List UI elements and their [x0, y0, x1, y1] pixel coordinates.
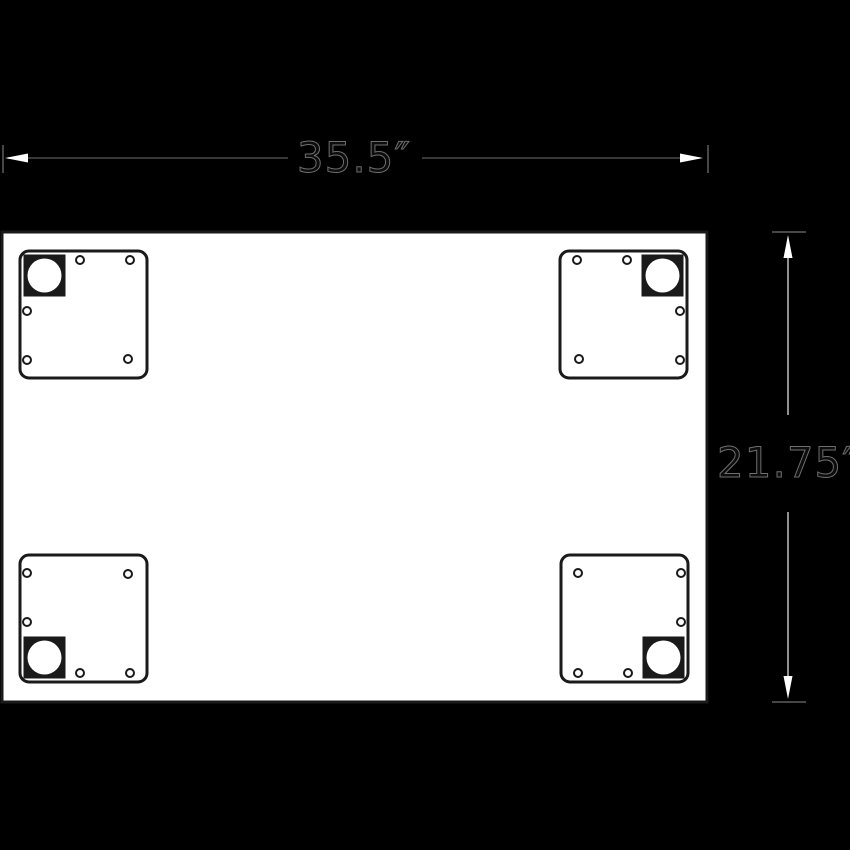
technical-drawing-canvas: 35.5″ 21.75″ [0, 0, 850, 850]
screw-hole [574, 669, 582, 677]
screw-hole [76, 256, 84, 264]
height-dimension: 21.75″ [717, 232, 850, 702]
screw-hole [677, 618, 685, 626]
screw-hole [126, 669, 134, 677]
screw-hole [676, 307, 684, 315]
screw-hole [573, 256, 581, 264]
arrowhead-right-icon [680, 154, 703, 163]
screw-hole [575, 355, 583, 363]
arrowhead-down-icon [784, 676, 793, 699]
width-dimension-label: 35.5″ [297, 133, 411, 182]
leg-socket-circle [646, 259, 680, 293]
screw-hole [126, 256, 134, 264]
mounting-plate-bottom-left [20, 555, 147, 682]
screw-hole [23, 569, 31, 577]
screw-hole [23, 356, 31, 364]
screw-hole [23, 307, 31, 315]
screw-hole [124, 355, 132, 363]
screw-hole [677, 569, 685, 577]
arrowhead-left-icon [5, 154, 28, 163]
leg-socket-circle [647, 641, 681, 675]
mounting-plate-bottom-right [561, 555, 688, 682]
screw-hole [676, 356, 684, 364]
mounting-plate-top-left [20, 251, 147, 378]
leg-socket-circle [28, 641, 62, 675]
screw-hole [76, 669, 84, 677]
arrowhead-up-icon [784, 235, 793, 258]
dimension-drawing: 35.5″ 21.75″ [0, 0, 850, 850]
screw-hole [574, 569, 582, 577]
screw-hole [23, 618, 31, 626]
height-dimension-label: 21.75″ [717, 438, 850, 487]
screw-hole [624, 669, 632, 677]
screw-hole [623, 256, 631, 264]
screw-hole [124, 570, 132, 578]
leg-socket-circle [28, 259, 62, 293]
mounting-plate-top-right [560, 251, 687, 378]
width-dimension: 35.5″ [3, 133, 708, 182]
